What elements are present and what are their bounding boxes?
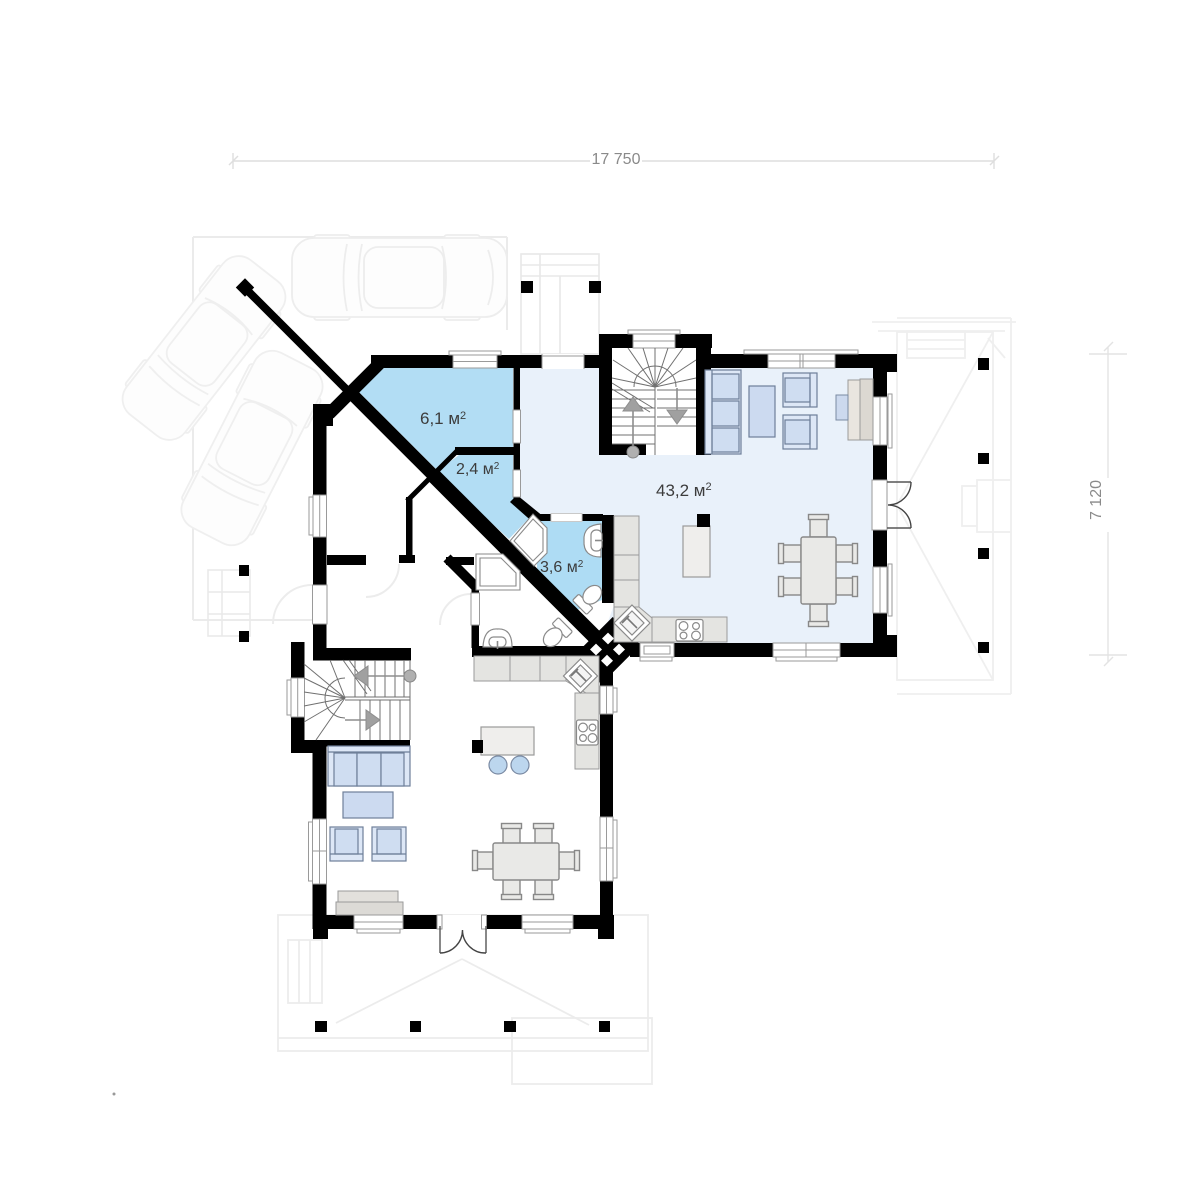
svg-text:6,1 м2: 6,1 м2 — [420, 409, 466, 428]
svg-text:2,4 м2: 2,4 м2 — [456, 461, 500, 478]
svg-text:3,6 м2: 3,6 м2 — [540, 559, 584, 576]
svg-text:43,2 м2: 43,2 м2 — [656, 481, 712, 500]
svg-text:17 750: 17 750 — [592, 151, 641, 168]
svg-text:7 120: 7 120 — [1088, 480, 1105, 520]
